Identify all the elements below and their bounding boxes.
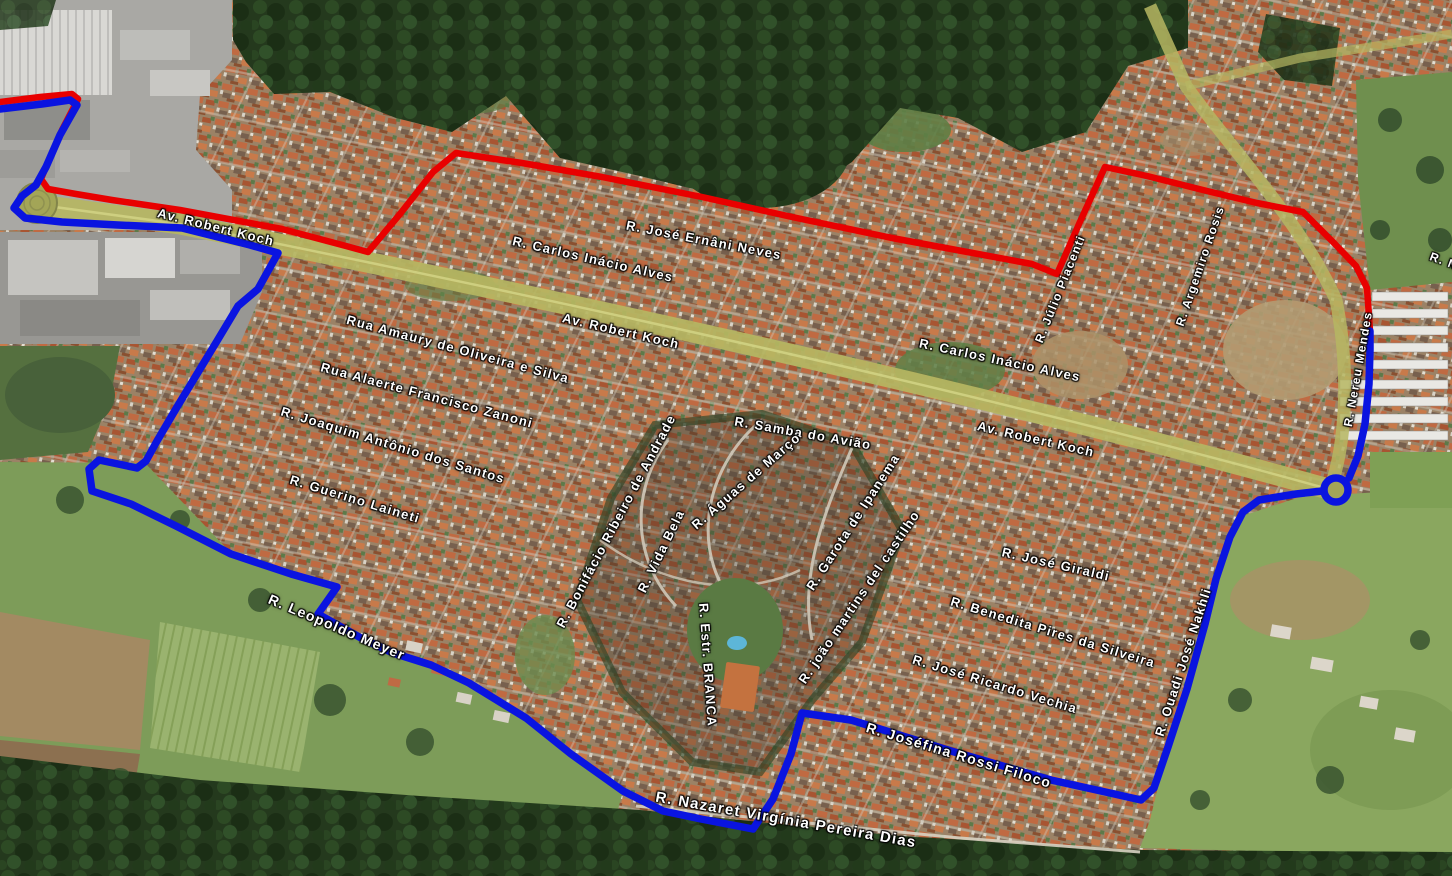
swimming-pool xyxy=(727,636,747,650)
satellite-map xyxy=(0,0,1452,876)
map-viewport[interactable]: Av. Robert KochR. Carlos Inácio AlvesR. … xyxy=(0,0,1452,876)
tennis-courts xyxy=(720,662,760,712)
